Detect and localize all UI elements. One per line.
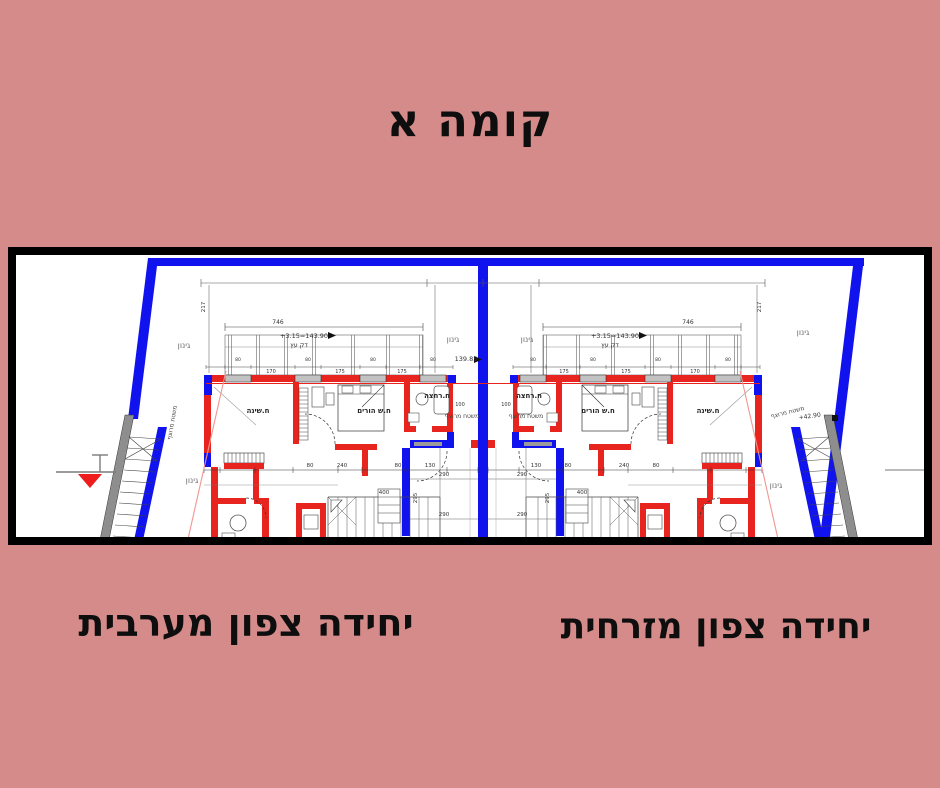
floor-plan-panel: גינון גינון גינון גינון גינון גינון משטח… bbox=[8, 247, 932, 545]
dim-text: 80 bbox=[370, 357, 376, 363]
dim-text: 130 bbox=[531, 463, 542, 469]
dim-text: 290 bbox=[517, 512, 528, 518]
dim-text: 80 bbox=[590, 357, 596, 363]
dim-text: 290 bbox=[517, 472, 528, 478]
floor-plan-svg: גינון גינון גינון גינון גינון גינון משטח… bbox=[8, 247, 932, 545]
garden-label: גינון bbox=[797, 328, 810, 337]
dim-text: 80 bbox=[235, 357, 241, 363]
unit-east-label: יחידה צפון מזרחית bbox=[515, 606, 917, 647]
dim-text: 240 bbox=[619, 463, 630, 469]
bathroom-label: ח.רחצה bbox=[516, 392, 542, 400]
dim-text: 295 bbox=[545, 492, 551, 503]
dim-text: 290 bbox=[439, 472, 450, 478]
dim-text: 100 bbox=[455, 402, 465, 408]
dim-text: 175 bbox=[621, 369, 631, 375]
dim-text: 746 bbox=[272, 319, 284, 326]
dim-text: 80 bbox=[653, 463, 660, 469]
parents-room-label: ח.ש הורים bbox=[357, 407, 391, 415]
garden-label: גינון bbox=[186, 476, 199, 485]
deck-label: דק עץ bbox=[290, 341, 308, 349]
paved-area-label: משטח מרוצף bbox=[509, 413, 544, 420]
dim-text: 746 bbox=[682, 319, 694, 326]
dim-text: 80 bbox=[655, 357, 661, 363]
level-annotation: +3.15=143.90 bbox=[280, 332, 328, 340]
dim-text: 80 bbox=[307, 463, 314, 469]
dim-text: 175 bbox=[335, 369, 345, 375]
page-title: קומה א bbox=[0, 94, 940, 147]
dim-text: 400 bbox=[379, 490, 390, 496]
dim-text: 290 bbox=[439, 512, 450, 518]
dim-text: 175 bbox=[559, 369, 569, 375]
dim-text: 80 bbox=[565, 463, 572, 469]
dim-text: 80 bbox=[725, 357, 731, 363]
dim-text: 80 bbox=[395, 463, 402, 469]
dim-text: 175 bbox=[397, 369, 407, 375]
level-annotation: 139.85 bbox=[455, 355, 478, 363]
bedroom-label: ח.שינה bbox=[247, 407, 270, 415]
dim-text: 217 bbox=[201, 301, 207, 312]
dim-text: 170 bbox=[690, 369, 700, 375]
unit-west-label: יחידה צפון מערבית bbox=[30, 601, 462, 645]
dim-text: 80 bbox=[530, 357, 536, 363]
garden-label: גינון bbox=[521, 335, 534, 344]
flyer-page: { "page": { "title": "קומה א", "backgrou… bbox=[0, 0, 940, 788]
deck-label: דק עץ bbox=[601, 341, 619, 349]
bedroom-label: ח.שינה bbox=[697, 407, 720, 415]
level-annotation: +3.15=143.90 bbox=[591, 332, 639, 340]
parents-room-label: ח.ש הורים bbox=[581, 407, 615, 415]
garden-label: גינון bbox=[178, 341, 191, 350]
dim-text: 400 bbox=[577, 490, 588, 496]
dim-text: 80 bbox=[430, 357, 436, 363]
dim-text: 130 bbox=[425, 463, 436, 469]
garden-label: גינון bbox=[447, 335, 460, 344]
dim-text: 295 bbox=[413, 492, 419, 503]
dim-text: 170 bbox=[266, 369, 276, 375]
garden-label: גינון bbox=[770, 481, 783, 490]
bathroom-label: ח.רחצה bbox=[424, 392, 450, 400]
dim-text: 80 bbox=[305, 357, 311, 363]
dim-text: 217 bbox=[757, 301, 763, 312]
dim-text: 100 bbox=[501, 402, 511, 408]
dim-text: 240 bbox=[337, 463, 348, 469]
paved-area-label: משטח מרוצף bbox=[445, 413, 480, 420]
party-wall bbox=[478, 259, 488, 545]
